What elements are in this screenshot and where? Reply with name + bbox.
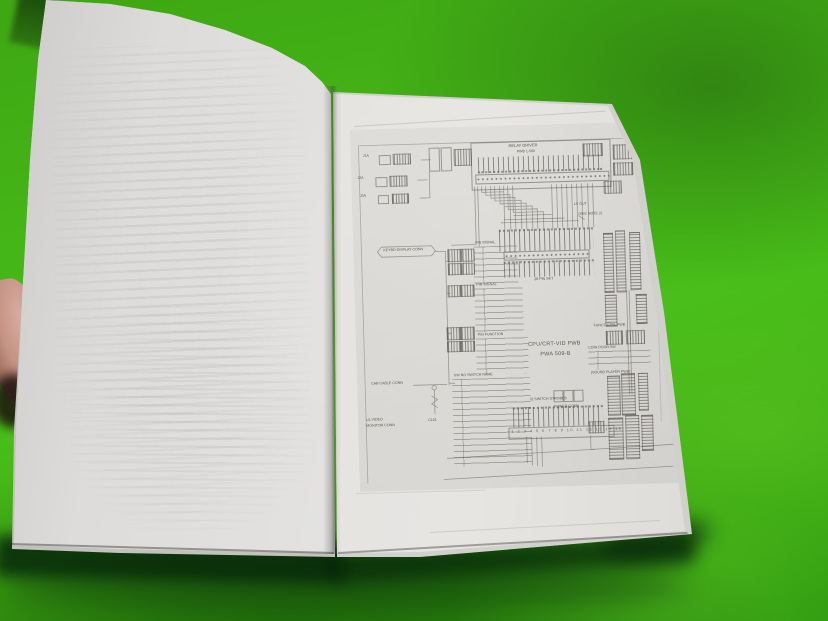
socket-label: 28 PIN SKT bbox=[534, 276, 553, 281]
photo-scene: J1A J2A J3A RELAY DRIVER PWB 1-500 bbox=[0, 0, 828, 621]
note-arrow bbox=[578, 215, 584, 219]
note-label-2: (SEE NOTE 2) bbox=[578, 211, 602, 216]
connector-label: J3A bbox=[360, 194, 366, 198]
coin-door-label: COIN DOOR SW bbox=[588, 345, 616, 350]
power-box bbox=[573, 390, 583, 402]
wire-cross-lines bbox=[500, 214, 578, 223]
connector-block bbox=[392, 193, 409, 203]
edge-bar bbox=[629, 232, 642, 290]
connector-label: J1A bbox=[363, 153, 369, 157]
book-shadow-soft bbox=[0, 558, 690, 610]
connector-block bbox=[447, 249, 461, 262]
book-gutter bbox=[323, 86, 341, 554]
relay-board-title: RELAY DRIVER bbox=[508, 143, 537, 148]
connector-block bbox=[393, 153, 411, 164]
edge-bar bbox=[621, 373, 636, 415]
relay-board-subtitle: PWB 1-500 bbox=[517, 149, 536, 154]
component-label: C101 bbox=[428, 418, 437, 422]
connector-box bbox=[375, 177, 387, 187]
wire-bundle-left bbox=[482, 185, 544, 231]
ic-block bbox=[613, 162, 633, 176]
connector-block bbox=[460, 285, 474, 297]
video-label: UL VIDEO bbox=[366, 417, 383, 422]
ic-outline bbox=[441, 147, 453, 171]
pin-table bbox=[476, 337, 529, 374]
schematic-diagram: J1A J2A J3A RELAY DRIVER PWB 1-500 bbox=[350, 121, 682, 492]
component-symbol bbox=[431, 390, 438, 414]
showthrough-text-lines-2 bbox=[69, 299, 311, 531]
page-edge-bar bbox=[646, 142, 651, 176]
edge-bar bbox=[603, 233, 615, 293]
page-stack-line-1 bbox=[430, 520, 660, 533]
note-label: L5 OUT bbox=[574, 201, 587, 205]
cab-label-leader bbox=[413, 384, 447, 385]
connector-block bbox=[448, 263, 462, 275]
resistor-row bbox=[513, 405, 604, 428]
connector-block bbox=[447, 285, 460, 297]
component-symbol-cap bbox=[432, 385, 437, 390]
wire-long-drops bbox=[450, 186, 480, 247]
connector-block bbox=[447, 327, 461, 340]
schematic-subtitle: PWA 509-B bbox=[540, 350, 571, 357]
connector-label: J2A bbox=[357, 176, 363, 180]
pin-table-header: PIN SIGNAL bbox=[476, 282, 496, 287]
ic-block bbox=[604, 180, 622, 193]
connector-block bbox=[461, 327, 475, 340]
connector-box bbox=[378, 195, 389, 204]
ic-block bbox=[606, 330, 623, 344]
edge-bar bbox=[641, 415, 654, 451]
pin-table-header: PIN FUNCTION bbox=[478, 332, 504, 337]
pin-table bbox=[474, 287, 523, 332]
connector-block bbox=[461, 341, 475, 352]
pin-table bbox=[473, 245, 518, 284]
ic-outline bbox=[429, 148, 441, 172]
edge-bar bbox=[625, 415, 640, 459]
connector-block bbox=[389, 175, 407, 186]
video-label-2: MONITOR CONN bbox=[366, 423, 395, 428]
edge-bar bbox=[638, 373, 649, 411]
edge-bar bbox=[615, 230, 627, 292]
legend-table bbox=[588, 350, 650, 370]
pin-table-header: PIN SIGNAL bbox=[475, 240, 495, 245]
edge-bar bbox=[636, 294, 648, 324]
ic-block bbox=[454, 149, 472, 166]
ic-block bbox=[626, 330, 645, 345]
ic-block bbox=[582, 143, 602, 157]
edge-bar bbox=[607, 376, 621, 416]
connector-block bbox=[447, 341, 461, 352]
connector-box bbox=[379, 155, 391, 165]
